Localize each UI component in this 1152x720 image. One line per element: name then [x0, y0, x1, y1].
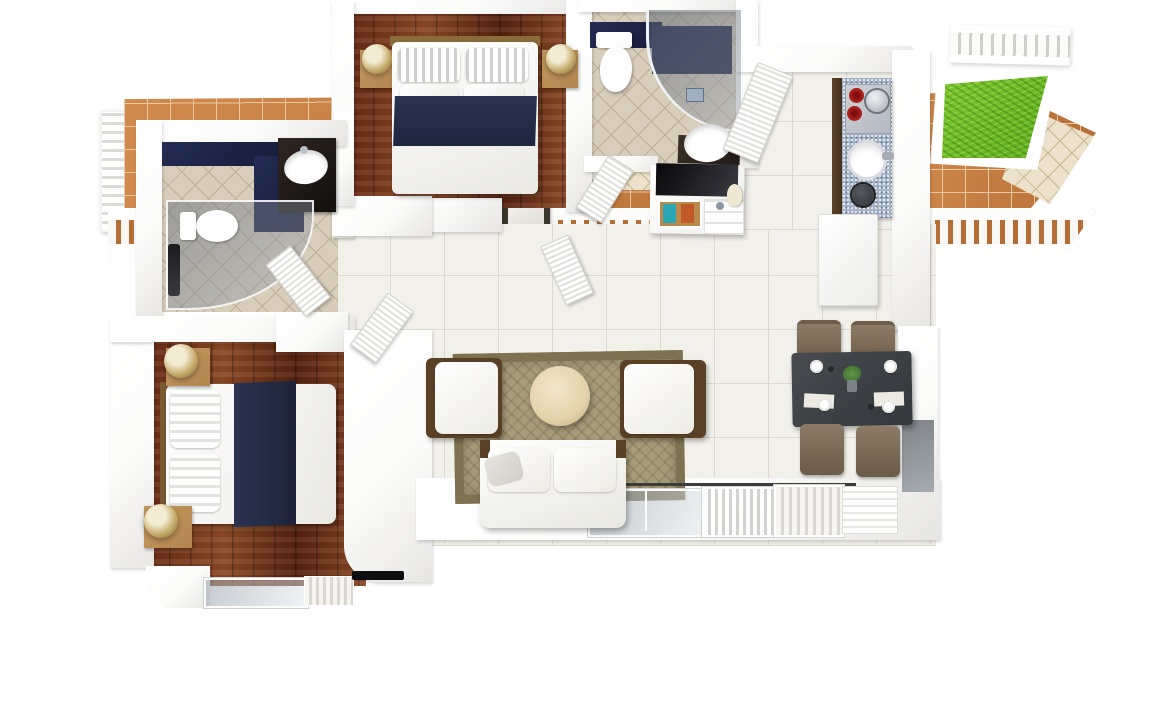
bed-runner-navy: [393, 96, 537, 146]
cooking-pot: [852, 184, 874, 206]
bed-pillow-striped: [398, 48, 460, 82]
armchair: [620, 360, 706, 438]
vase: [727, 184, 742, 206]
blind-panel: [774, 485, 844, 537]
closet-block: [276, 312, 348, 352]
cooktop-burner: [847, 106, 862, 121]
wall-master-bedroom-bottom-left: [146, 566, 210, 608]
cooktop-burner: [849, 88, 864, 103]
table-lamp: [362, 44, 392, 74]
book-teal: [663, 204, 676, 223]
wall-kitchen-right: [892, 50, 930, 330]
dining-chair: [800, 424, 844, 475]
armchair-cushion: [435, 362, 498, 434]
sliding-glass-door: [204, 578, 308, 608]
plate: [882, 400, 895, 413]
kettle: [866, 90, 888, 112]
dining-chair: [856, 426, 900, 477]
shower-fixtures: [168, 244, 180, 296]
bed-pillow: [170, 390, 220, 448]
toilet-bowl: [196, 210, 238, 242]
sliding-glass-door-blinds: [702, 487, 778, 537]
book-orange: [681, 204, 694, 223]
bed-runner-navy: [234, 381, 296, 527]
console-knob: [716, 202, 724, 210]
armchair: [426, 358, 502, 438]
table-lamp: [144, 504, 178, 538]
sink-faucet: [882, 152, 894, 160]
terrace-railing-grass: [950, 24, 1071, 65]
wall-master-bathroom-left: [136, 120, 162, 320]
terrace-door-panel: [842, 486, 898, 534]
kitchen-sink: [847, 140, 887, 180]
cup: [868, 404, 874, 410]
glass-door-divider: [645, 491, 647, 531]
vanity-faucet: [300, 146, 308, 154]
plate: [884, 360, 897, 373]
cup: [828, 366, 834, 372]
wall-tv: [352, 571, 404, 580]
plate: [810, 360, 823, 373]
wall-master-bedroom-right: [344, 330, 432, 582]
bed-master: [160, 382, 336, 526]
refrigerator: [818, 214, 878, 306]
armchair-cushion: [624, 364, 694, 434]
coffee-table: [530, 366, 590, 426]
wall-bedroom2-right: [566, 0, 592, 212]
centerpiece-vase: [847, 380, 857, 392]
bed-pillow: [170, 454, 220, 512]
loveseat: [480, 440, 626, 528]
table-lamp: [546, 44, 576, 74]
table-lamp: [164, 344, 198, 378]
bed-pillow-striped: [466, 48, 528, 82]
console-black-top: [656, 163, 739, 196]
wall-bedroom2-top: [332, 0, 592, 14]
dining-window-glass: [902, 420, 934, 492]
loveseat-cushion: [554, 448, 616, 492]
blind-panel: [304, 576, 354, 606]
shower-drain: [686, 88, 704, 102]
plate: [818, 398, 831, 411]
floor-plan-canvas: [0, 0, 1152, 720]
bed-bedroom-2: [390, 36, 540, 194]
loveseat-wood-post: [616, 440, 626, 458]
toilet-tank: [180, 212, 196, 240]
